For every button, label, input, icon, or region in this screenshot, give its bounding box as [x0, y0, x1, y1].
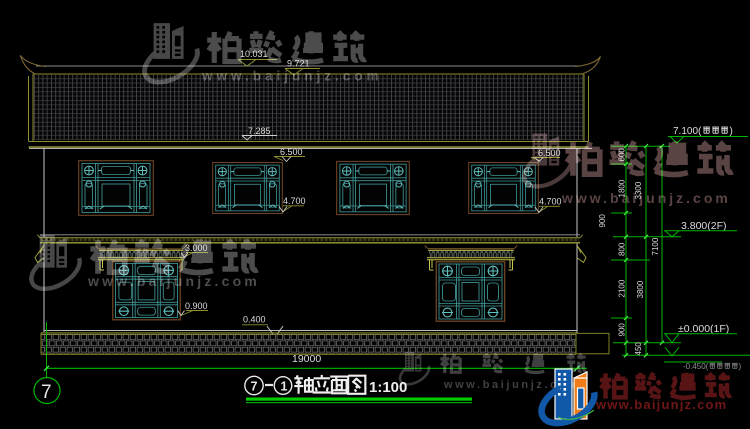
svg-text:19000: 19000: [292, 353, 321, 365]
svg-text:7.100(: 7.100(: [673, 126, 702, 137]
svg-text:www.baijunjz.com: www.baijunjz.com: [201, 69, 383, 84]
svg-text:450: 450: [634, 342, 643, 356]
svg-text:www.baijunjz.com: www.baijunjz.com: [87, 273, 260, 289]
svg-text:www.baijunjz.com: www.baijunjz.com: [561, 190, 731, 206]
svg-text:1: 1: [281, 380, 288, 394]
svg-text:4.700: 4.700: [539, 197, 562, 207]
svg-text:±0.000(1F): ±0.000(1F): [678, 323, 729, 335]
svg-text:): ): [739, 362, 742, 371]
svg-text:3.800(2F): 3.800(2F): [681, 220, 727, 232]
svg-text:800: 800: [618, 242, 627, 256]
svg-text:4.700: 4.700: [283, 196, 306, 206]
svg-text:0.900: 0.900: [185, 301, 208, 311]
svg-text:): ): [730, 126, 733, 137]
svg-text:900: 900: [598, 214, 607, 228]
svg-text:7100: 7100: [651, 237, 660, 255]
svg-text:3800: 3800: [636, 280, 645, 298]
svg-text:2100: 2100: [618, 279, 627, 297]
svg-text:900: 900: [618, 323, 627, 337]
svg-text:www.baijunjz.com: www.baijunjz.com: [595, 397, 727, 412]
svg-text:7: 7: [251, 380, 258, 394]
svg-text:7: 7: [41, 382, 52, 403]
svg-text:7.285: 7.285: [248, 126, 271, 136]
svg-text:6.500: 6.500: [280, 147, 303, 157]
svg-text:-0.450(: -0.450(: [683, 362, 709, 371]
svg-text:0.400: 0.400: [243, 315, 266, 325]
